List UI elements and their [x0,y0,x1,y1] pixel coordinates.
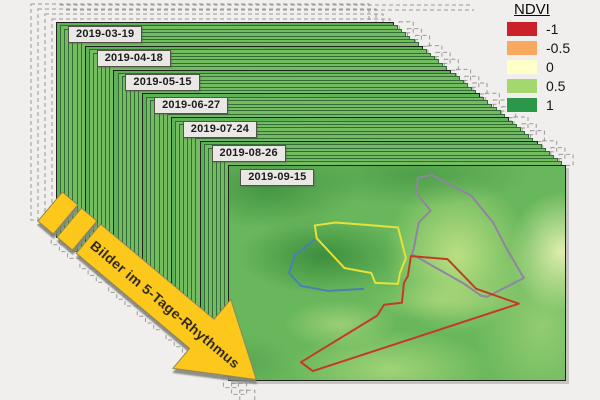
process-arrow: Bilder im 5-Tage-Rhythmus [21,172,285,400]
legend-swatch [507,60,537,74]
ndvi-legend: NDVI -1-0.500.51 [507,1,570,117]
legend-row: -1 [507,22,570,36]
legend-swatch [507,79,537,93]
legend-value: -0.5 [546,41,570,55]
legend-value: -1 [546,22,558,36]
legend-swatch [507,98,537,112]
arrow-label: Bilder im 5-Tage-Rhythmus [87,238,242,372]
legend-row: 1 [507,98,570,112]
ndvi-time-series-figure: 2019-03-192019-04-182019-05-152019-06-27… [0,0,600,400]
legend-row: -0.5 [507,41,570,55]
legend-value: 0 [546,60,554,74]
legend-row: 0.5 [507,79,570,93]
legend-value: 1 [546,98,554,112]
legend-row: 0 [507,60,570,74]
legend-title: NDVI [514,1,570,18]
legend-swatch [507,22,537,36]
legend-value: 0.5 [546,79,565,93]
legend-swatch [507,41,537,55]
